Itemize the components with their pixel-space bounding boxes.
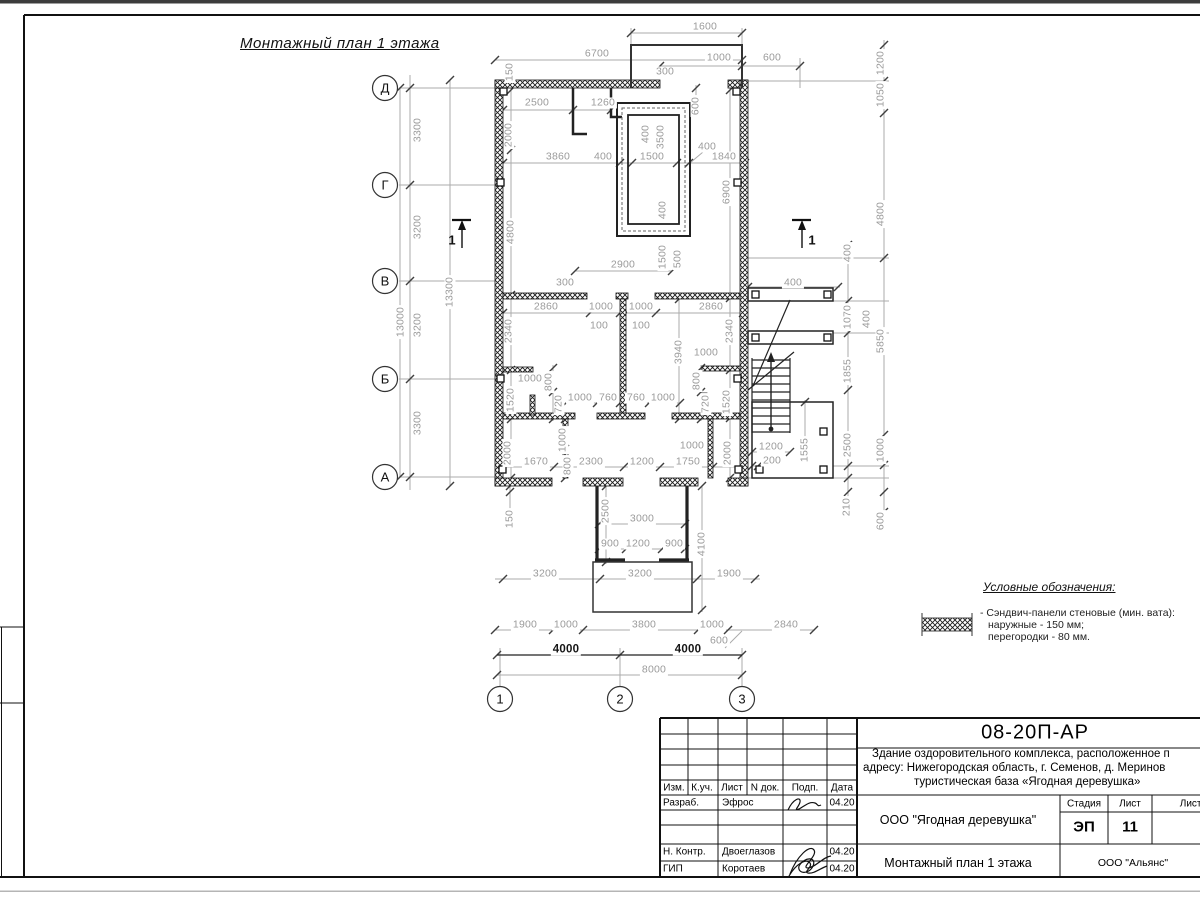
dimension-label: 1200 (757, 442, 785, 453)
org-contractor: ООО "Альянс" (1098, 857, 1168, 869)
dimension-label: 1000 (876, 436, 887, 464)
dimension-label: 1070 (843, 303, 854, 331)
dimension-label: 3200 (531, 569, 559, 580)
role-cell: Н. Контр. (663, 847, 706, 858)
project-description-line: туристическая база «Ягодная деревушка» (914, 776, 1140, 788)
legend-swatch (922, 613, 972, 636)
dimension-label: 1555 (800, 436, 811, 464)
dimension-label: 760 (625, 393, 647, 404)
role-cell: ГИП (663, 864, 683, 875)
name-cell: Двоеглазов (722, 847, 775, 858)
dimension-label: 100 (588, 321, 610, 332)
axis-bubble-label: 2 (616, 692, 623, 707)
dimension-label: 1200 (624, 539, 652, 550)
dimension-label: 2840 (772, 620, 800, 631)
thin-partitions (573, 88, 622, 134)
dimension-label: 1500 (658, 243, 669, 271)
dimension-label: 1000 (516, 374, 544, 385)
dimension-label: 720 (701, 393, 712, 415)
dimension-label: 4100 (697, 530, 708, 558)
dimension-label: 800 (692, 370, 703, 392)
dimension-label: 760 (597, 393, 619, 404)
dimension-label: 100 (630, 321, 652, 332)
dimension-label: 4000 (551, 645, 581, 656)
pool (617, 103, 690, 236)
dimension-label: 500 (673, 248, 684, 270)
dimension-label: 1000 (566, 393, 594, 404)
sheet-value: 11 (1122, 819, 1138, 836)
dimension-label: 2000 (504, 121, 515, 149)
dimension-label: 800 (563, 455, 574, 477)
dimension-label: 1000 (698, 620, 726, 631)
dimension-label: 2000 (503, 439, 514, 467)
stage-value: ЭП (1073, 819, 1094, 836)
axis-bubble-label: Б (381, 372, 390, 387)
dimension-label: 3800 (630, 620, 658, 631)
dimension-label: 5850 (876, 327, 887, 355)
dimension-label: 4000 (673, 645, 703, 656)
dimension-label: 200 (761, 456, 783, 467)
dimension-label: 1000 (552, 620, 580, 631)
sheets-label: Листов (1180, 799, 1200, 810)
col-header-data: Дата (831, 783, 853, 794)
section-mark-label: 1 (448, 233, 455, 248)
dimension-label: 150 (505, 61, 516, 83)
drawing-name: Монтажный план 1 этажа (884, 856, 1031, 870)
col-header-kuch: К.уч. (691, 783, 713, 794)
axis-bubble-label: 3 (738, 692, 745, 707)
dimension-label: 1900 (715, 569, 743, 580)
date-cell: 04.20 (829, 847, 854, 858)
dimension-label: 2500 (523, 98, 551, 109)
name-cell: Коротаев (722, 864, 765, 875)
dimension-label: 150 (505, 508, 516, 530)
dimension-label: 1500 (638, 152, 666, 163)
dimension-label: 210 (842, 496, 853, 518)
org-customer: ООО "Ягодная деревушка" (880, 813, 1036, 827)
dimension-label: 1000 (558, 426, 569, 454)
dimension-label: 600 (691, 95, 702, 117)
dimension-label: 2500 (601, 497, 612, 525)
dimension-label: 3300 (413, 409, 424, 437)
dimension-label: 600 (876, 510, 887, 532)
sheet-label: Лист (1119, 799, 1141, 810)
dimension-label: 1050 (876, 81, 887, 109)
dimension-label: 4800 (506, 218, 517, 246)
dimension-label: 8000 (640, 665, 668, 676)
dimension-label: 3300 (413, 116, 424, 144)
dimension-label: 2500 (843, 431, 854, 459)
page-title: Монтажный план 1 этажа (240, 35, 440, 52)
dimension-label: 300 (554, 278, 576, 289)
dimension-label: 1000 (692, 348, 720, 359)
dimension-label: 6700 (583, 49, 611, 60)
legend-item-line: перегородки - 80 мм. (988, 631, 1090, 643)
project-description-line: Здание оздоровительного комплекса, распо… (872, 748, 1170, 760)
dimension-label: 400 (592, 152, 614, 163)
dimension-label: 1520 (506, 386, 517, 414)
dimension-label: 4800 (876, 200, 887, 228)
dimension-label: 1600 (691, 22, 719, 33)
dimension-label: 1200 (876, 49, 887, 77)
dimension-label: 1000 (627, 302, 655, 313)
dimension-label: 2340 (725, 317, 736, 345)
dimension-label: 900 (663, 539, 685, 550)
col-header-izm: Изм. (663, 783, 684, 794)
dimension-label: 1520 (722, 388, 733, 416)
section-mark-label: 1 (808, 233, 815, 248)
dimension-label: 6900 (722, 178, 733, 206)
dimension-label: 1840 (710, 152, 738, 163)
dimension-label: 3200 (413, 213, 424, 241)
dimension-label: 1900 (511, 620, 539, 631)
dimension-label: 2300 (577, 457, 605, 468)
axis-bubble-label: В (381, 274, 390, 289)
axis-bubble-label: Д (381, 81, 390, 96)
col-header-list: Лист (721, 783, 743, 794)
dimension-label: 720 (554, 393, 565, 415)
dimension-label: 1260 (589, 98, 617, 109)
date-cell: 04.20 (829, 864, 854, 875)
dimension-label: 400 (641, 123, 652, 145)
stage-label: Стадия (1067, 799, 1101, 810)
dimension-label: 400 (843, 242, 854, 264)
dimension-label: 3500 (656, 123, 667, 151)
dimension-label: 1000 (705, 53, 733, 64)
col-header-podp: Подп. (792, 783, 819, 794)
role-cell: Разраб. (663, 798, 699, 809)
dimension-label: 1855 (843, 357, 854, 385)
dimension-label: 2000 (723, 439, 734, 467)
doc-number: 08-20П-АР (981, 722, 1089, 745)
dimension-label: 1000 (649, 393, 677, 404)
dimension-label: 400 (782, 278, 804, 289)
dimension-label: 3200 (626, 569, 654, 580)
dimension-label: 13000 (396, 305, 407, 339)
dimension-label: 2860 (697, 302, 725, 313)
dimension-label: 1000 (678, 441, 706, 452)
dimension-label: 400 (862, 308, 873, 330)
drawing-sheet: Монтажный план 1 этажа Условные обозначе… (0, 0, 1200, 900)
staircase (748, 300, 794, 433)
dimension-label: 2900 (609, 260, 637, 271)
dimension-label: 600 (708, 636, 730, 647)
legend-heading: Условные обозначения: (983, 580, 1115, 594)
signatures (788, 799, 831, 876)
date-cell: 04.20 (829, 798, 854, 809)
dimension-label: 2340 (504, 317, 515, 345)
axis-bubble-label: Г (381, 178, 388, 193)
dimension-label: 900 (599, 539, 621, 550)
dimension-label: 400 (658, 199, 669, 221)
leader-line (690, 152, 703, 163)
dimension-label: 600 (761, 53, 783, 64)
dimension-label: 3000 (628, 514, 656, 525)
dimension-label: 2860 (532, 302, 560, 313)
ramp-beams (748, 288, 833, 344)
axis-bubble-label: 1 (496, 692, 503, 707)
dimension-label: 300 (654, 67, 676, 78)
legend-item-line: - Сэндвич-панели стеновые (мин. вата): (980, 607, 1175, 619)
dimension-label: 3940 (674, 338, 685, 366)
dimension-label: 1750 (674, 457, 702, 468)
dimension-label: 13300 (445, 275, 456, 309)
legend-item-line: наружные - 150 мм; (988, 619, 1084, 631)
col-header-ndok: N док. (751, 783, 780, 794)
dimension-label: 800 (544, 371, 555, 393)
dimension-label: 1670 (522, 457, 550, 468)
dimension-label: 1000 (587, 302, 615, 313)
dimension-label: 3860 (544, 152, 572, 163)
dimension-label: 1200 (628, 457, 656, 468)
name-cell: Эфрос (722, 798, 754, 809)
project-description-line: адресу: Нижегородская область, г. Семено… (863, 762, 1165, 774)
dimension-label: 3200 (413, 311, 424, 339)
axis-bubble-label: А (381, 470, 390, 485)
